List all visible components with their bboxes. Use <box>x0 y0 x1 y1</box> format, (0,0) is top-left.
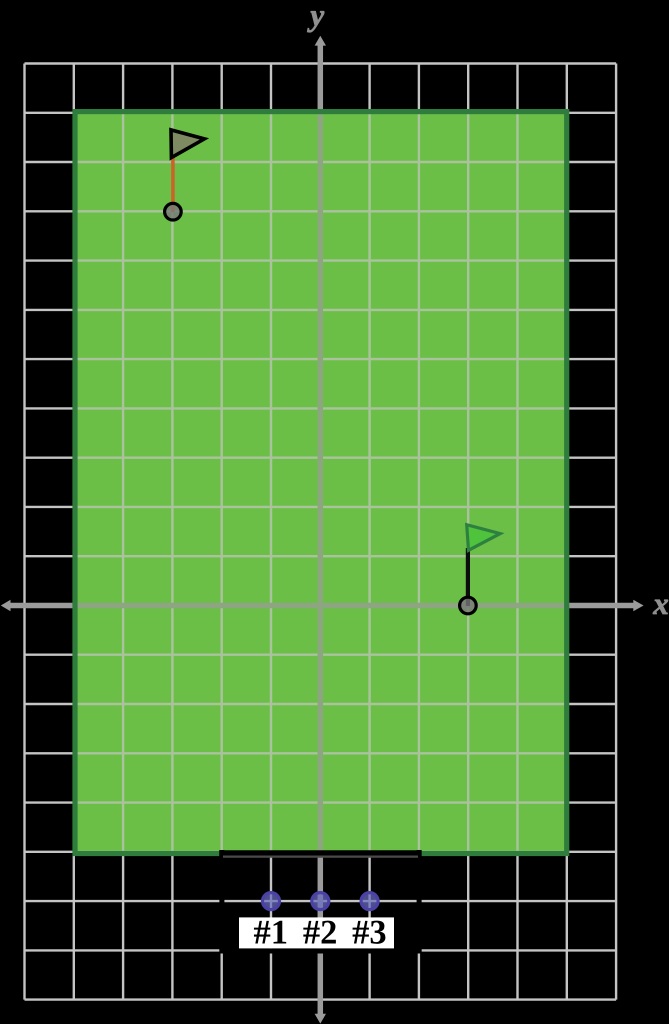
svg-text:#2: #2 <box>303 914 338 952</box>
svg-text:x: x <box>652 586 669 621</box>
svg-text:#3: #3 <box>352 914 387 952</box>
svg-text:#1: #1 <box>254 914 289 952</box>
